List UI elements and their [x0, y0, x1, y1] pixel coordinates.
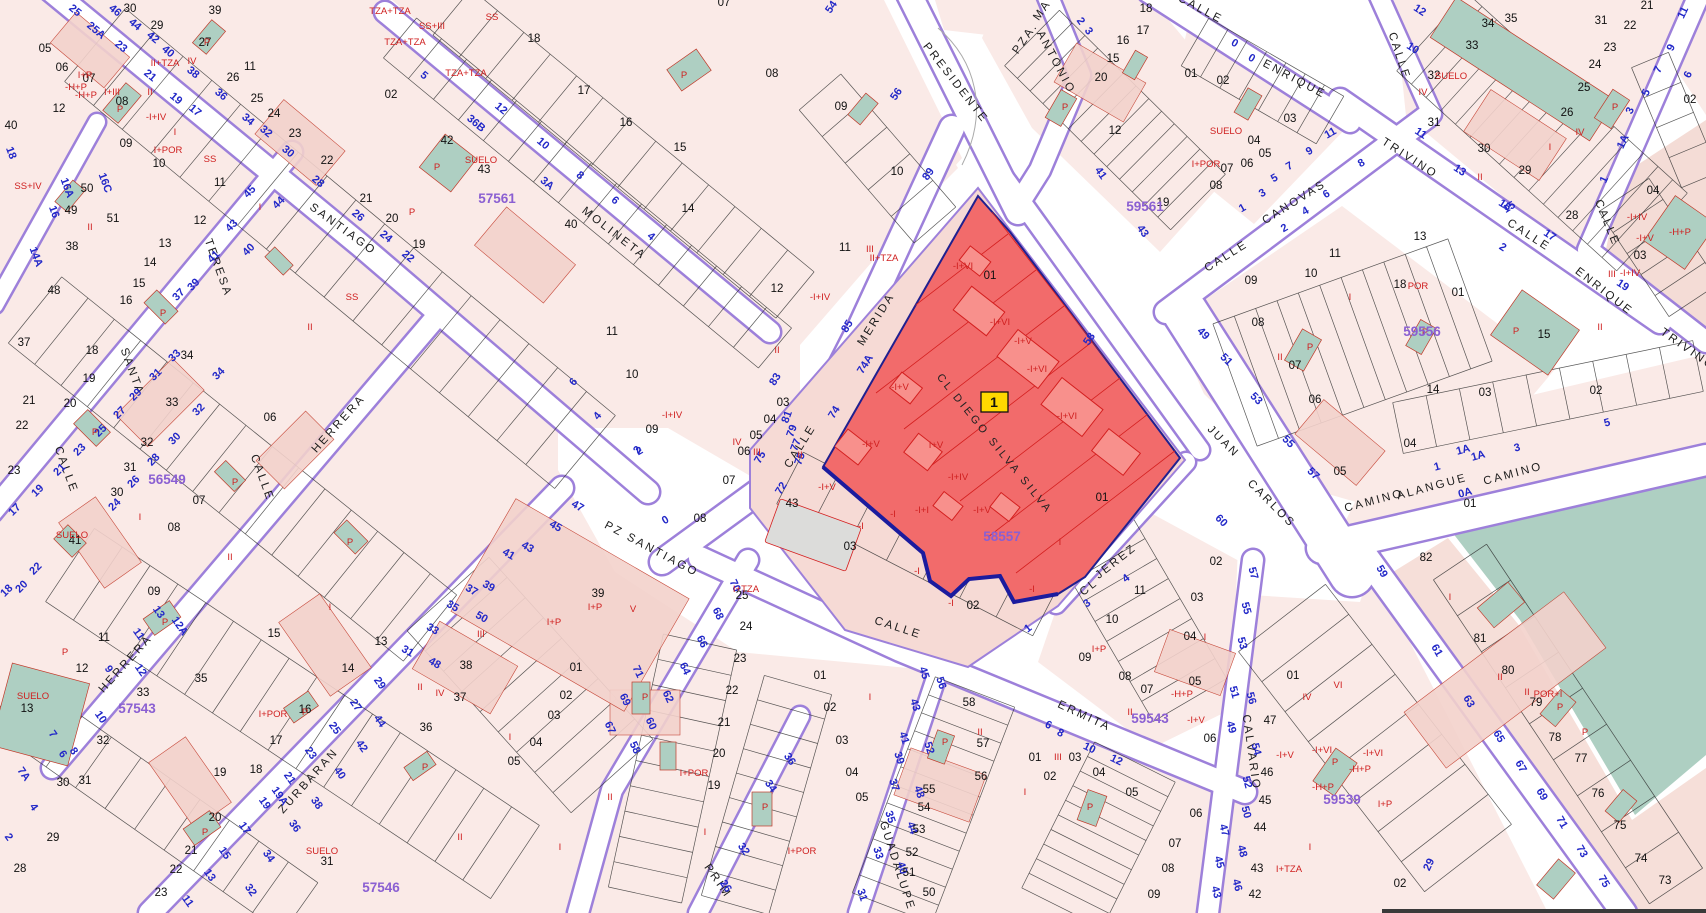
- parcel-number: 09: [1245, 275, 1258, 287]
- block-number: 57543: [118, 701, 156, 716]
- parcel-number: 14: [1427, 384, 1440, 396]
- parcel-number: 55: [923, 784, 936, 796]
- parcel-number: 34: [1482, 18, 1495, 30]
- parcel-number: 01: [814, 670, 827, 682]
- parcel-number: 03: [844, 541, 857, 553]
- building-label: I: [1204, 632, 1207, 643]
- building-label: -I: [890, 509, 896, 520]
- parcel-number: 31: [124, 462, 137, 474]
- parcel-number: 33: [166, 397, 179, 409]
- parcel-number: 01: [984, 270, 997, 282]
- building-label: P: [347, 537, 353, 548]
- parcel-number: 45: [1259, 795, 1272, 807]
- building-label: -H+P: [1349, 764, 1371, 775]
- parcel-number: 07: [1289, 360, 1302, 372]
- building-label: -I+VI: [1312, 745, 1332, 756]
- parcel-number: 16: [120, 295, 133, 307]
- block-number: 58557: [983, 529, 1021, 544]
- building-label: P: [204, 37, 210, 48]
- parcel-number: 03: [1069, 752, 1082, 764]
- parcel-number: 30: [111, 487, 124, 499]
- parcel-number: 04: [1404, 438, 1417, 450]
- parcel-number: 11: [1329, 248, 1341, 260]
- parcel-number: 02: [967, 600, 980, 612]
- parcel-number: 19: [413, 239, 426, 251]
- parcel-number: 24: [740, 621, 753, 633]
- building-label: V: [630, 604, 637, 615]
- parcel-number: 51: [903, 867, 916, 879]
- parcel-number: 10: [626, 369, 639, 381]
- parcel-number: 22: [1624, 20, 1637, 32]
- building-label: P: [302, 707, 308, 718]
- parcel-number: 01: [1096, 492, 1109, 504]
- building-label: -I+IV: [1627, 212, 1648, 223]
- building-label: I+POR: [680, 768, 709, 779]
- building-label: -I+V: [1636, 233, 1654, 244]
- parcel-number: 39: [209, 5, 222, 17]
- parcel-number: 19: [214, 767, 227, 779]
- building-label: P: [681, 70, 687, 81]
- parcel-number: 12: [76, 663, 89, 675]
- parcel-number: 08: [1162, 863, 1175, 875]
- parcel-number: 02: [1217, 75, 1230, 87]
- street-number: 2: [1497, 241, 1509, 254]
- parcel-number: 22: [16, 420, 29, 432]
- parcel-number: 36: [420, 722, 433, 734]
- parcel-number: 05: [750, 430, 763, 442]
- building-label: I+V: [929, 440, 944, 451]
- parcel-number: 06: [56, 62, 69, 74]
- building-label: II: [977, 727, 982, 738]
- building-label: I+POR: [154, 145, 183, 156]
- building-label: P: [1087, 802, 1093, 813]
- parcel-number: 14: [144, 257, 157, 269]
- parcel-number: 40: [5, 120, 18, 132]
- street-number: 60: [1213, 512, 1230, 529]
- parcel-number: 30: [57, 777, 70, 789]
- parcel-number: 12: [771, 283, 784, 295]
- parcel-number: 22: [726, 685, 739, 697]
- building-label: I: [704, 827, 707, 838]
- building-label: SS+IV: [14, 181, 42, 192]
- parcel-number: 16: [1117, 35, 1130, 47]
- building-label: II: [227, 552, 232, 563]
- building-label: P: [434, 162, 440, 173]
- parcel-number: 01: [1287, 670, 1300, 682]
- parcel-number: 05: [1189, 676, 1202, 688]
- parcel-number: 35: [195, 673, 208, 685]
- parcel-number: 09: [1148, 889, 1161, 901]
- cadastral-map-viewport[interactable]: CL DIEGO SILVA SILVA 1 PRESIDENTEPZA.MAA…: [0, 0, 1706, 913]
- parcel-number: 16: [620, 117, 633, 129]
- parcel-number: 11: [1134, 585, 1146, 597]
- parcel-number: 02: [1590, 385, 1603, 397]
- cadastral-map[interactable]: CL DIEGO SILVA SILVA 1 PRESIDENTEPZA.MAA…: [0, 0, 1706, 913]
- parcel-number: 31: [79, 775, 92, 787]
- parcel-number: 02: [824, 702, 837, 714]
- building-label: I: [329, 602, 332, 613]
- parcel-number: 81: [1474, 633, 1487, 645]
- parcel-number: 25: [1578, 82, 1591, 94]
- building-label: P: [1332, 757, 1338, 768]
- building-label: -I: [914, 566, 920, 577]
- building-label: -I+IV: [810, 292, 831, 303]
- parcel-number: 13: [159, 238, 172, 250]
- parcel-number: 15: [674, 142, 687, 154]
- parcel-number: 23: [155, 887, 168, 899]
- building-label: POR: [1408, 281, 1429, 292]
- building-label: II: [417, 682, 422, 693]
- parcel-number: 58: [963, 697, 976, 709]
- building-label: P: [1062, 102, 1068, 113]
- building-label: II: [774, 345, 779, 356]
- building-label: II: [307, 322, 312, 333]
- building-label: II: [1597, 322, 1602, 333]
- parcel-number: 20: [64, 398, 77, 410]
- building-label: IV: [1419, 87, 1429, 98]
- building-label: I+POR: [788, 846, 817, 857]
- building-label: I: [509, 732, 512, 743]
- parcel-number: 34: [181, 350, 194, 362]
- building-label: I+P: [588, 602, 603, 613]
- building-label: II: [457, 832, 462, 843]
- parcel-number: 05: [1334, 466, 1347, 478]
- parcel-number: 28: [1566, 210, 1579, 222]
- building-label: P: [1513, 326, 1519, 337]
- building-label: III: [1054, 752, 1062, 763]
- building-label: P: [1612, 102, 1618, 113]
- parcel-number: 12: [1109, 125, 1122, 137]
- parcel-number: 37: [18, 337, 31, 349]
- block-number: 57561: [478, 191, 516, 206]
- parcel-number: 38: [66, 241, 79, 253]
- building-label: -I+V: [862, 439, 880, 450]
- parcel-number: 31: [1428, 117, 1441, 129]
- building-label: -I: [948, 598, 954, 609]
- parcel-number: 05: [1259, 148, 1272, 160]
- building-label: P: [942, 737, 948, 748]
- parcel-number: 57: [977, 738, 990, 750]
- building-label: P: [62, 647, 68, 658]
- parcel-number: 05: [1126, 787, 1139, 799]
- building-label: VI: [1334, 680, 1343, 691]
- parcel-number: 49: [65, 205, 78, 217]
- parcel-number: 05: [39, 43, 52, 55]
- parcel-number: 01: [1185, 68, 1198, 80]
- building-label: SS: [204, 154, 217, 165]
- parcel-number: 08: [694, 513, 707, 525]
- parcel-number: 21: [718, 717, 731, 729]
- parcel-number: 05: [508, 756, 521, 768]
- parcel-number: 23: [8, 465, 21, 477]
- parcel-number: 02: [1044, 771, 1057, 783]
- parcel-number: 22: [170, 864, 183, 876]
- parcel-number: 18: [250, 764, 263, 776]
- building-label: I+P: [1378, 799, 1393, 810]
- building-label: -I+V: [1014, 336, 1032, 347]
- parcel-number: 10: [1305, 268, 1318, 280]
- parcel-number: 54: [918, 802, 931, 814]
- parcel-number: 21: [360, 193, 373, 205]
- building-label: IV: [1303, 692, 1313, 703]
- parcel-number: 23: [734, 653, 747, 665]
- building-label: -I+VI: [953, 261, 973, 272]
- parcel-number: 02: [560, 690, 573, 702]
- building-label: P: [117, 104, 123, 115]
- parcel-number: 29: [47, 832, 60, 844]
- building-label: P: [1307, 342, 1313, 353]
- parcel-number: 20: [209, 812, 222, 824]
- building-label: -I+I: [915, 505, 929, 516]
- building-label: II: [1477, 172, 1482, 183]
- building-label: I: [559, 842, 562, 853]
- parcel-number: 07: [718, 0, 731, 9]
- building-label: -I: [858, 521, 864, 532]
- building-label: SUELO: [17, 691, 49, 702]
- building-label: SUELO: [1435, 71, 1467, 82]
- parcel-number: 07: [723, 475, 736, 487]
- building-label: IV: [733, 437, 743, 448]
- parcel-number: 15: [1107, 53, 1120, 65]
- parcel-number: 01: [1452, 287, 1465, 299]
- building-label: III: [477, 629, 485, 640]
- parcel-number: 11: [839, 242, 851, 254]
- parcel-number: 29: [1519, 165, 1532, 177]
- building-label: P: [202, 827, 208, 838]
- building-label: II: [147, 87, 152, 98]
- building-label: POR+I: [1534, 689, 1563, 700]
- building-label: -H+P: [75, 90, 97, 101]
- parcel-number: 75: [1614, 820, 1627, 832]
- building-label: I: [259, 202, 262, 213]
- parcel-number: 08: [1210, 180, 1223, 192]
- building-label: II: [607, 792, 612, 803]
- block-number: 59556: [1403, 324, 1441, 339]
- parcel-number: 07: [1169, 838, 1182, 850]
- parcel-number: 33: [137, 687, 150, 699]
- parcel-number: 73: [1659, 875, 1672, 887]
- building-label: SS+III: [419, 21, 445, 32]
- parcel-number: 03: [836, 735, 849, 747]
- parcel-number: 06: [1190, 808, 1203, 820]
- building-label: -I+IV: [948, 472, 969, 483]
- parcel-number: 09: [120, 138, 133, 150]
- parcel-number: 24: [268, 108, 281, 120]
- parcel-number: 32: [141, 437, 154, 449]
- building-label: I+P: [547, 617, 562, 628]
- parcel-number: 48: [48, 285, 61, 297]
- parcel-number: 76: [1592, 788, 1605, 800]
- parcel-number: 10: [1106, 614, 1119, 626]
- building-label: I: [1309, 842, 1312, 853]
- building-label: P: [160, 308, 166, 319]
- parcel-number: 25: [251, 93, 264, 105]
- building-label: -I+VI: [1057, 411, 1077, 422]
- parcel-number: 20: [386, 213, 399, 225]
- parcel-number: 03: [548, 710, 561, 722]
- building-label: II: [1497, 672, 1502, 683]
- parcel-number: 78: [1549, 732, 1562, 744]
- building-label: -I: [1029, 584, 1035, 595]
- building-label: TZA+TZA: [369, 6, 411, 17]
- building-label: -I+VI: [1027, 364, 1047, 375]
- building-label: IV: [1576, 127, 1586, 138]
- building-label: I: [139, 512, 142, 523]
- building-label: -I+V: [891, 382, 909, 393]
- parcel-number: 29: [151, 20, 164, 32]
- building-label: I+TZA: [1276, 864, 1303, 875]
- parcel-number: 11: [98, 632, 110, 644]
- parcel-number: 23: [1604, 42, 1617, 54]
- parcel-number: 28: [14, 863, 27, 875]
- parcel-number: 82: [1420, 552, 1433, 564]
- parcel-number: 02: [1684, 94, 1697, 106]
- parcel-number: 42: [441, 135, 454, 147]
- parcel-number: 09: [1079, 652, 1092, 664]
- building-label: I: [869, 692, 872, 703]
- block-number: 56549: [148, 472, 186, 487]
- building-label: P: [162, 617, 168, 628]
- building-label: I+POR: [259, 709, 288, 720]
- parcel-number: 08: [1252, 317, 1265, 329]
- parcel-number: 20: [713, 748, 726, 760]
- parcel-number: 39: [592, 588, 605, 600]
- parcel-number: 19: [83, 373, 96, 385]
- building-label: II: [1524, 687, 1529, 698]
- parcel-number: 01: [1464, 498, 1477, 510]
- building-label: -H+P: [1171, 689, 1193, 700]
- building-label: -H+P: [1669, 227, 1691, 238]
- parcel-number: 50: [81, 183, 94, 195]
- parcel-number: 08: [1119, 671, 1132, 683]
- parcel-marker[interactable]: 1: [981, 392, 1008, 412]
- parcel-number: 13: [21, 703, 34, 715]
- building-label: IV: [436, 688, 446, 699]
- parcel-number: 80: [1502, 665, 1515, 677]
- courtyard-patch: [1537, 859, 1576, 899]
- parcel-number: 52: [906, 847, 919, 859]
- parcel-number: 07: [1141, 684, 1154, 696]
- parcel-number: 14: [682, 203, 695, 215]
- parcel-number: 17: [1137, 25, 1150, 37]
- building-label: SUELO: [465, 155, 497, 166]
- parcel-number: 10: [153, 158, 166, 170]
- parcel-number: 03: [1284, 113, 1297, 125]
- parcel-number: 06: [1309, 394, 1322, 406]
- parcel-number: 01: [570, 662, 583, 674]
- parcel-number: 08: [766, 68, 779, 80]
- parcel-marker-label: 1: [990, 394, 998, 410]
- parcel-number: 15: [1538, 329, 1551, 341]
- parcel-number: 07: [193, 495, 206, 507]
- building-label: -I+V: [973, 505, 991, 516]
- parcel-number: 06: [1204, 733, 1217, 745]
- parcel-number: 18: [1140, 3, 1153, 15]
- parcel-number: 09: [148, 586, 161, 598]
- parcel-number: 32: [97, 735, 110, 747]
- parcel-number: 38: [460, 660, 473, 672]
- building-label: SUELO: [306, 846, 338, 857]
- parcel-number: 30: [1478, 143, 1491, 155]
- building-label: -I+V: [1276, 750, 1294, 761]
- building-label: P: [422, 762, 428, 773]
- building-label: I: [1349, 292, 1352, 303]
- parcel-number: 04: [846, 767, 859, 779]
- parcel-number: 30: [124, 3, 137, 15]
- building-label: P: [762, 802, 768, 813]
- parcel-number: 18: [528, 33, 541, 45]
- parcel-number: 51: [107, 213, 120, 225]
- building-label: P: [1557, 702, 1563, 713]
- parcel-number: 03: [1634, 250, 1647, 262]
- parcel-number: 35: [1505, 13, 1518, 25]
- parcel-number: 04: [1093, 767, 1106, 779]
- parcel-number: 11: [244, 61, 256, 73]
- block-number: 59561: [1126, 199, 1164, 214]
- parcel-number: 24: [1589, 59, 1602, 71]
- building-label: IV: [188, 56, 198, 67]
- parcel-number: 21: [1641, 0, 1654, 12]
- building-label: -I+IV: [146, 112, 167, 123]
- parcel-number: 06: [1241, 158, 1254, 170]
- parcel-number: 74: [1635, 853, 1648, 865]
- parcel-number: 11: [214, 177, 226, 189]
- building-label: I+P: [1092, 644, 1107, 655]
- parcel-number: 77: [1575, 753, 1588, 765]
- parcel-number: 04: [1647, 185, 1660, 197]
- building-label: I+POR: [1192, 159, 1221, 170]
- parcel-number: 31: [1595, 15, 1608, 27]
- viewport-edge: [1382, 909, 1706, 913]
- parcel-number: 01: [1029, 752, 1042, 764]
- block-number: 59543: [1131, 711, 1169, 726]
- parcel-number: 02: [1394, 878, 1407, 890]
- building-label: II: [1277, 352, 1282, 363]
- building-label: II+TZA: [870, 253, 899, 264]
- parcel-number: 09: [835, 101, 848, 113]
- building-label: -I+VI: [1363, 748, 1383, 759]
- building-label: I: [174, 127, 177, 138]
- parcel-number: 23: [289, 128, 302, 140]
- parcel-number: 03: [1191, 592, 1204, 604]
- building-label: -I+V: [818, 482, 836, 493]
- building-label: III: [866, 244, 874, 255]
- parcel-number: 47: [1264, 715, 1277, 727]
- building-label: I+TZA: [733, 584, 760, 595]
- parcel-number: 14: [342, 663, 355, 675]
- building-label: P: [642, 692, 648, 703]
- block-number: 59539: [1323, 792, 1361, 807]
- parcel-number: 18: [86, 345, 99, 357]
- parcel-number: 20: [1095, 72, 1108, 84]
- parcel-number: 02: [1210, 556, 1223, 568]
- parcel-number: 37: [454, 692, 467, 704]
- courtyard-patch: [660, 742, 676, 770]
- parcel-number: 46: [1261, 767, 1274, 779]
- parcel-number: 40: [565, 219, 578, 231]
- building-label: -I+VI: [990, 317, 1010, 328]
- parcel-number: 08: [168, 522, 181, 534]
- building-label: III: [753, 447, 761, 458]
- parcel-number: 12: [53, 103, 66, 115]
- building-label: I+P: [78, 70, 93, 81]
- building-label: I+III: [104, 87, 120, 98]
- building-label: P: [92, 427, 98, 438]
- parcel-number: 03: [1479, 387, 1492, 399]
- parcel-number: 26: [1561, 107, 1574, 119]
- building-label: II: [797, 450, 802, 461]
- building-label: II: [87, 222, 92, 233]
